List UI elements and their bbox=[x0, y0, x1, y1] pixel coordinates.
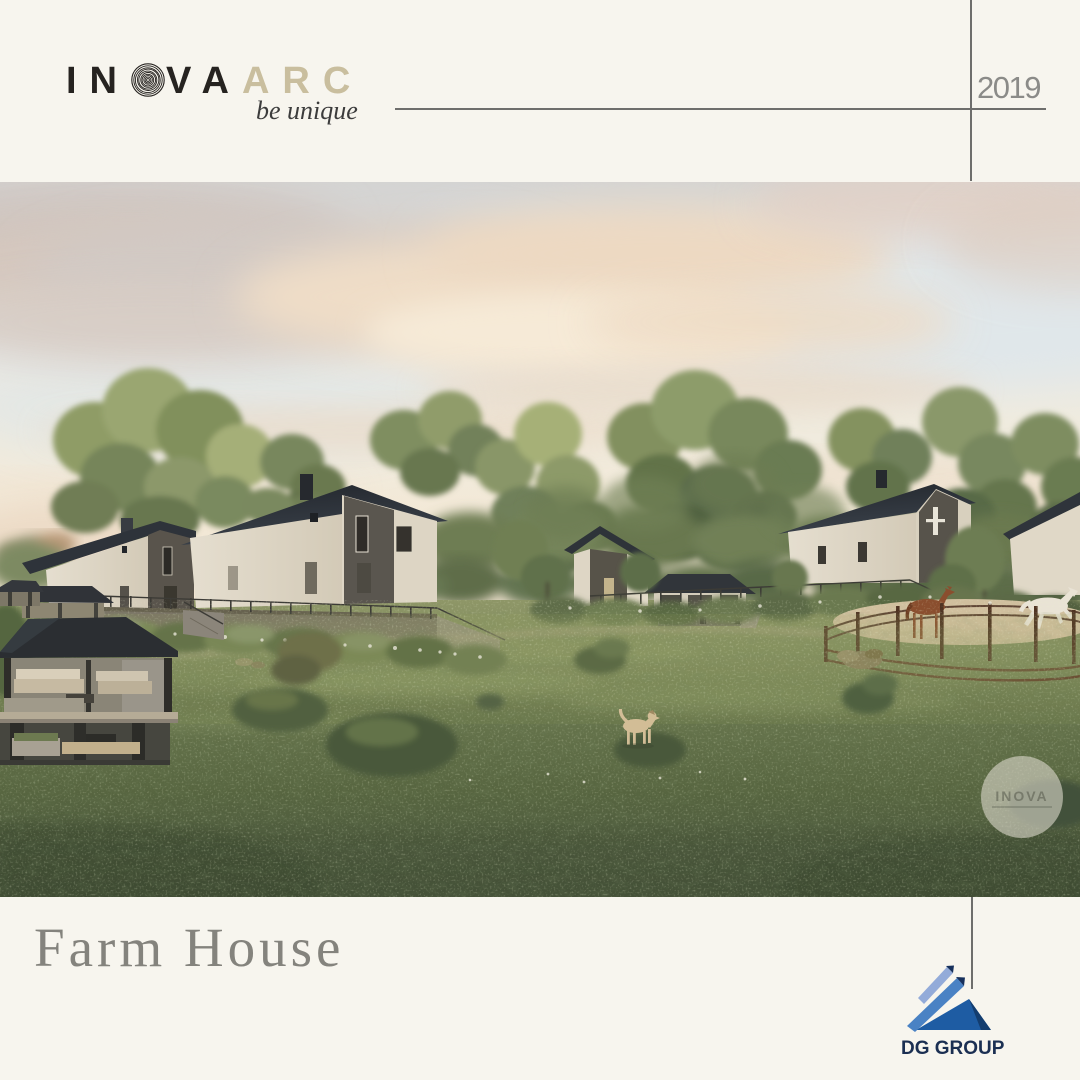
svg-text:DG GROUP: DG GROUP bbox=[901, 1038, 1005, 1059]
svg-text:INOVA: INOVA bbox=[995, 788, 1048, 804]
